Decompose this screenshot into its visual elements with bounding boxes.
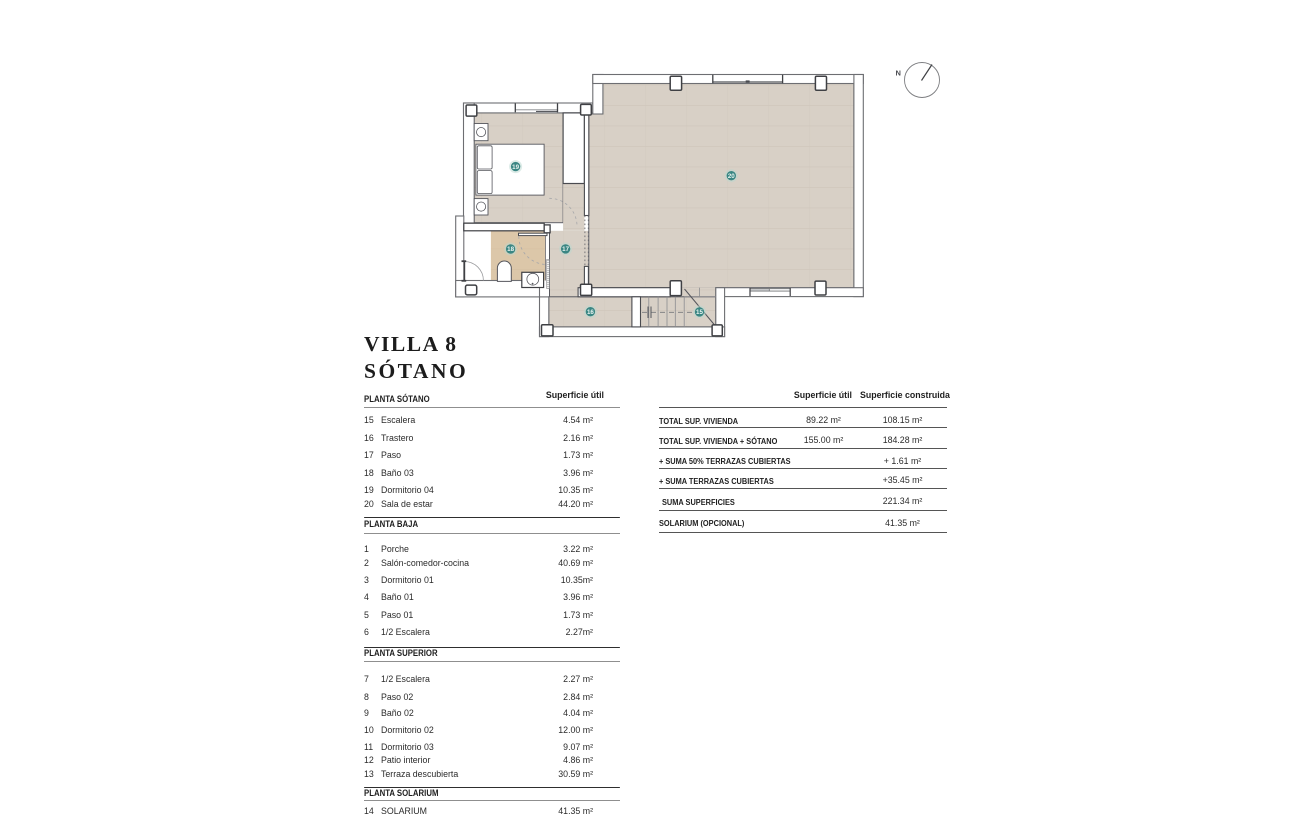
svg-text:17: 17 [562,246,569,253]
svg-text:16: 16 [587,309,594,316]
svg-text:15: 15 [696,309,703,316]
svg-text:20: 20 [728,173,735,180]
svg-text:18: 18 [507,246,514,253]
svg-text:N: N [896,69,901,78]
svg-text:19: 19 [512,164,519,171]
